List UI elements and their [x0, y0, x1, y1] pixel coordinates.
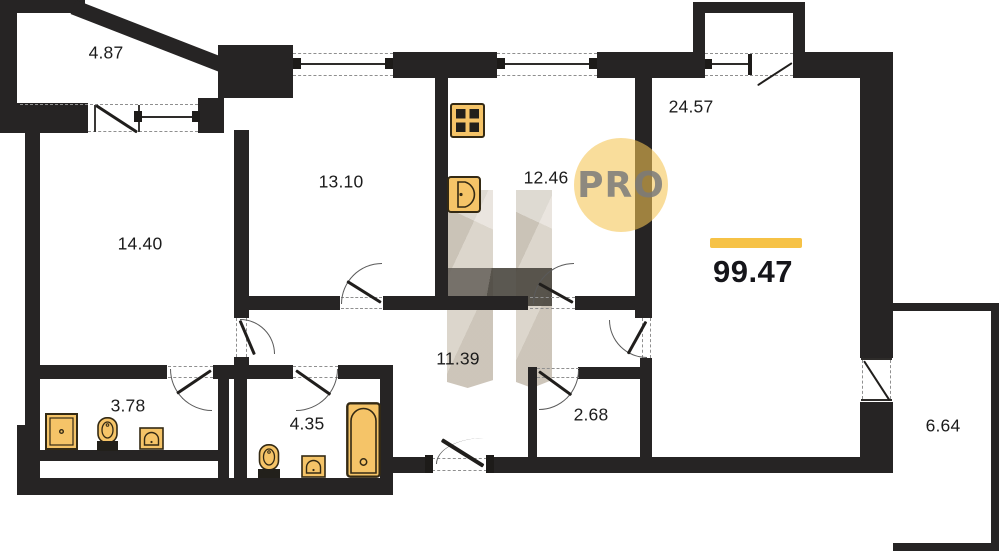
wall	[693, 2, 705, 78]
wall	[435, 52, 448, 296]
wall	[338, 365, 393, 379]
room-label-living-room: 24.57	[669, 97, 714, 118]
wall	[25, 365, 167, 379]
room-label-kitchen: 12.46	[524, 168, 569, 189]
wall	[234, 130, 249, 318]
wall	[385, 457, 393, 495]
wall	[218, 379, 229, 478]
wall	[805, 52, 893, 78]
wall	[578, 367, 640, 379]
door-leaf	[95, 104, 138, 133]
room-label-room-upper-middle: 13.10	[319, 172, 364, 193]
wall	[249, 296, 340, 310]
room-label-storage: 2.68	[574, 405, 609, 426]
wall	[17, 478, 393, 495]
wall	[383, 296, 528, 310]
wall	[860, 402, 893, 473]
watermark-pro-text: PRO	[574, 138, 668, 232]
room-label-balcony-upper-left: 4.87	[89, 43, 124, 64]
casement-leaf	[863, 360, 890, 401]
room-label-bathroom-main: 4.35	[290, 414, 325, 435]
toilet-icon	[96, 417, 119, 451]
wall	[25, 133, 40, 495]
room-label-bedroom-left: 14.40	[118, 234, 163, 255]
stove-icon	[450, 103, 485, 138]
wall	[640, 358, 652, 457]
wall	[693, 2, 805, 13]
room-label-balcony-right: 6.64	[926, 416, 961, 437]
wall	[213, 365, 293, 379]
wall	[218, 45, 293, 98]
kitchen-sink-icon	[447, 176, 481, 213]
floor-plan: PRO 99.47 4.87 13.10 12.46 24.57 14.40 1…	[0, 0, 999, 552]
balcony-wall	[893, 543, 999, 551]
wall	[793, 2, 805, 78]
balcony-wall	[893, 303, 999, 311]
total-area-accent-bar	[710, 238, 802, 248]
wall	[528, 367, 537, 457]
wall	[860, 78, 893, 358]
wall	[198, 98, 224, 133]
wall	[487, 457, 860, 473]
balcony-wall	[991, 303, 999, 551]
shower-icon	[45, 413, 78, 450]
bathtub-icon	[346, 402, 381, 478]
room-label-hallway: 11.39	[436, 349, 480, 370]
toilet-icon	[258, 444, 280, 478]
wall	[0, 103, 88, 133]
washbasin-icon	[301, 455, 326, 478]
wall	[234, 379, 247, 478]
room-label-bathroom-ensuite: 3.78	[111, 396, 146, 417]
wall	[25, 450, 220, 461]
total-area-value: 99.47	[713, 254, 793, 290]
washbasin-icon	[139, 427, 164, 450]
